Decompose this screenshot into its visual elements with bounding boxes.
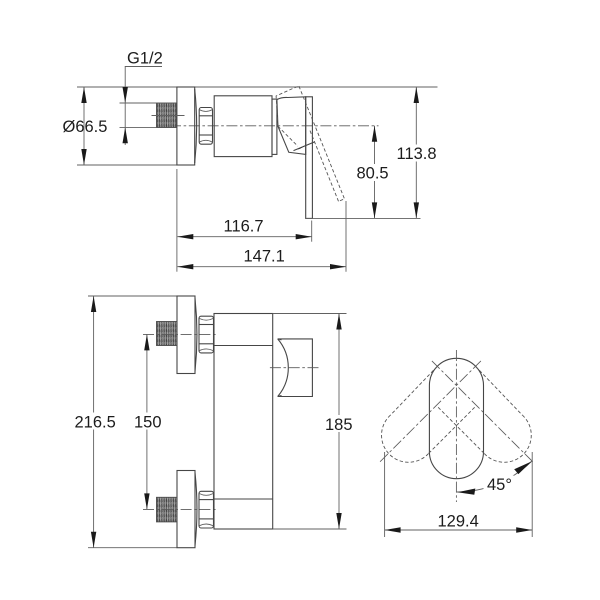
svg-text:185: 185	[325, 416, 353, 434]
svg-text:129.4: 129.4	[438, 513, 479, 531]
svg-text:116.7: 116.7	[224, 218, 264, 236]
svg-text:80.5: 80.5	[357, 165, 389, 183]
svg-text:45°: 45°	[487, 476, 512, 494]
svg-text:147.1: 147.1	[244, 248, 285, 266]
svg-text:113.8: 113.8	[397, 145, 437, 163]
svg-text:G1/2: G1/2	[127, 50, 163, 68]
svg-text:150: 150	[134, 414, 162, 432]
svg-text:Ø66.5: Ø66.5	[63, 118, 108, 136]
svg-text:216.5: 216.5	[75, 414, 116, 432]
